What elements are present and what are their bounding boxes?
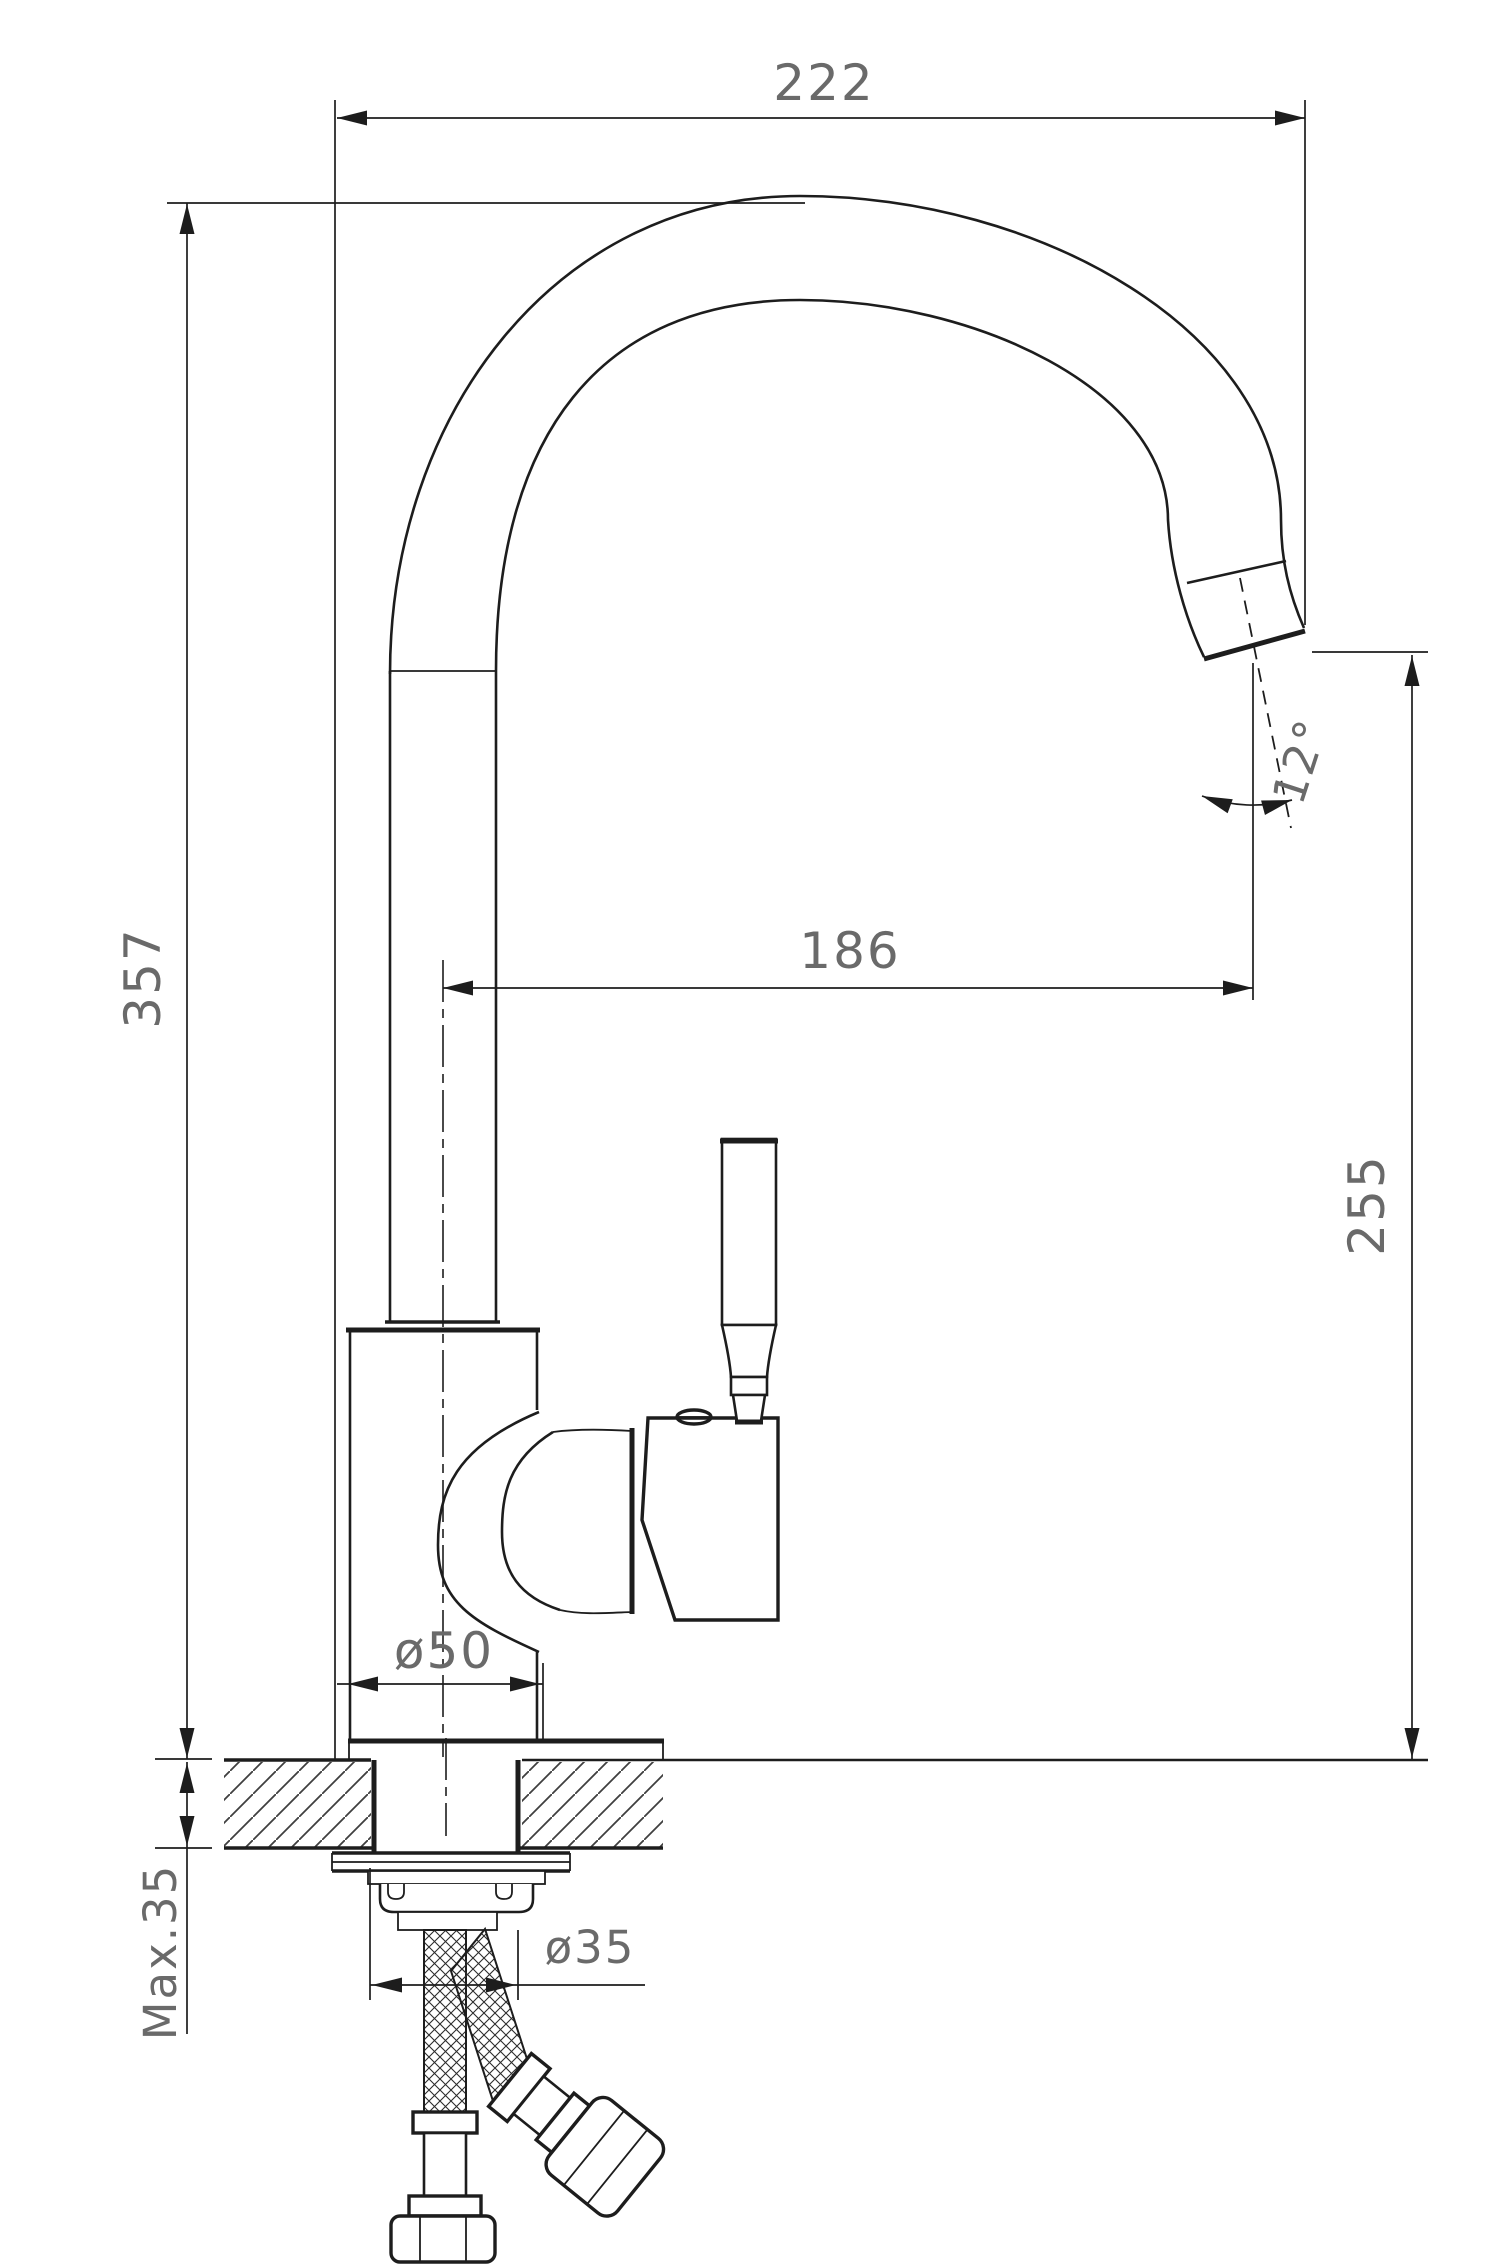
hose-end-nut (391, 2216, 495, 2262)
dimension-spout-reach: 186 (443, 922, 1253, 1757)
dim-label-d50: ø50 (394, 1622, 494, 1680)
dim-label-max35: Max.35 (134, 1864, 187, 2041)
ball-inner-arc (502, 1432, 560, 1610)
dimension-overall-width: 222 (335, 54, 1305, 1759)
ball-housing-connectors (553, 1430, 632, 1614)
washer-inner-lines (332, 1853, 570, 1871)
hose-collar-2 (409, 2196, 481, 2216)
spout-outlet-face (1204, 631, 1305, 659)
drawing-page: 222 357 186 255 12° (0, 0, 1500, 2266)
under-counter-fixing (332, 1853, 570, 1930)
counter-hatch-left (224, 1762, 371, 1848)
dim-label-186: 186 (799, 922, 900, 980)
ball-outer-arc (438, 1412, 539, 1652)
dimension-max-counter-thickness: Max.35 (134, 1762, 212, 2040)
cartridge-housing (642, 1418, 778, 1620)
handle-cone (733, 1395, 765, 1421)
dim-label-d35: ø35 (545, 1921, 636, 1974)
dimension-outlet-height: 255 (1312, 652, 1428, 1759)
fixing-plate (368, 1871, 545, 1884)
hose-collar-1 (413, 2112, 477, 2133)
counter-hatch-right (522, 1762, 663, 1848)
hose-braid-vertical (424, 1930, 466, 2112)
dim-label-255: 255 (1338, 1154, 1396, 1255)
hose-tube (424, 2133, 466, 2196)
spout-outer-edge (390, 196, 1304, 674)
spout-inner-edge (496, 300, 1204, 671)
dim-label-12deg: 12° (1262, 712, 1339, 810)
counter-cross-section (224, 1738, 1428, 1852)
handle-taper (722, 1325, 776, 1377)
dim-label-222: 222 (773, 54, 874, 112)
supply-hoses (391, 1929, 669, 2262)
handle-grip (722, 1139, 776, 1325)
base-plate-sides (349, 1743, 663, 1760)
lever-handle (720, 1139, 778, 1422)
shank-collar (398, 1912, 497, 1930)
dim-label-357: 357 (114, 927, 172, 1028)
aerator-joint-line (1187, 561, 1286, 583)
faucet-technical-drawing: 222 357 186 255 12° (0, 0, 1500, 2266)
handle-neck (731, 1377, 767, 1395)
